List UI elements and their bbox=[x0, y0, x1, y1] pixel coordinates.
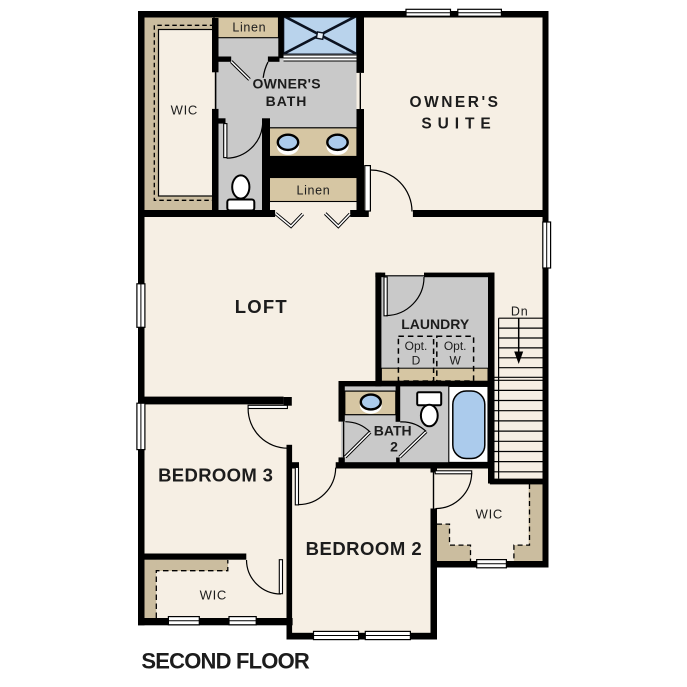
svg-text:BATH: BATH bbox=[266, 93, 308, 109]
svg-text:WIC: WIC bbox=[200, 588, 227, 603]
svg-text:W: W bbox=[450, 354, 462, 368]
svg-text:BATH: BATH bbox=[374, 423, 412, 439]
svg-text:WIC: WIC bbox=[171, 103, 198, 118]
svg-text:LOFT: LOFT bbox=[235, 296, 288, 317]
svg-text:OWNER'S: OWNER'S bbox=[410, 94, 501, 111]
svg-text:BEDROOM 2: BEDROOM 2 bbox=[306, 538, 423, 559]
svg-text:LAUNDRY: LAUNDRY bbox=[401, 316, 470, 332]
svg-text:Linen: Linen bbox=[296, 184, 330, 198]
svg-text:D: D bbox=[412, 354, 421, 368]
svg-text:SECOND FLOOR: SECOND FLOOR bbox=[141, 649, 310, 674]
svg-text:Dn: Dn bbox=[511, 305, 529, 319]
svg-text:Linen: Linen bbox=[232, 21, 266, 35]
svg-text:Opt.: Opt. bbox=[405, 339, 428, 353]
svg-text:SUITE: SUITE bbox=[421, 116, 496, 133]
svg-text:2: 2 bbox=[390, 439, 398, 455]
svg-text:Opt.: Opt. bbox=[444, 339, 467, 353]
svg-text:OWNER'S: OWNER'S bbox=[252, 76, 320, 92]
svg-text:WIC: WIC bbox=[476, 507, 503, 522]
svg-text:BEDROOM 3: BEDROOM 3 bbox=[158, 465, 273, 486]
